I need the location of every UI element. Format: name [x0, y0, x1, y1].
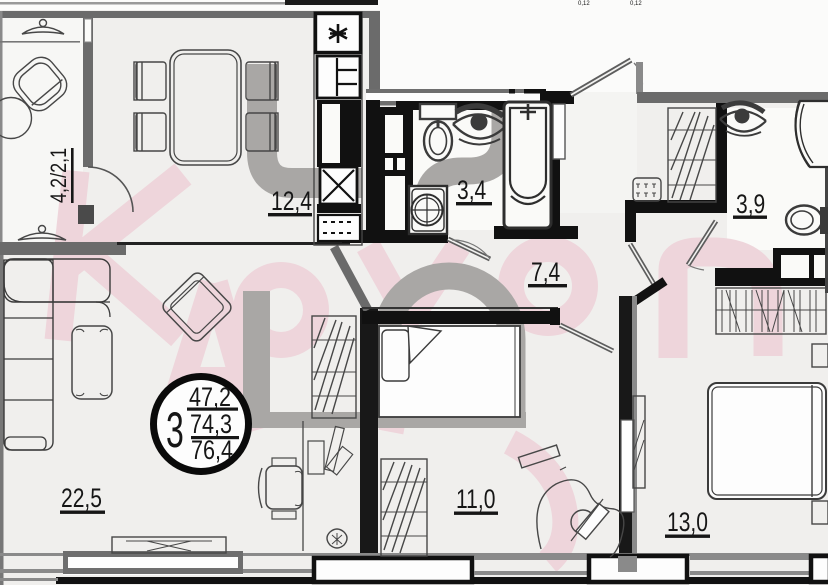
svg-text:7,4: 7,4	[531, 258, 560, 288]
svg-text:4,2/2,1: 4,2/2,1	[47, 148, 71, 203]
svg-text:11,0: 11,0	[456, 485, 495, 515]
svg-text:3,9: 3,9	[736, 190, 765, 220]
svg-text:3: 3	[166, 402, 184, 458]
svg-text:0,12: 0,12	[630, 1, 642, 7]
svg-text:13,0: 13,0	[667, 508, 708, 538]
svg-text:0,12: 0,12	[578, 1, 590, 7]
svg-text:12,4: 12,4	[271, 187, 312, 217]
svg-text:3,4: 3,4	[457, 176, 486, 206]
svg-text:76,4: 76,4	[191, 436, 233, 466]
svg-text:22,5: 22,5	[61, 484, 102, 514]
